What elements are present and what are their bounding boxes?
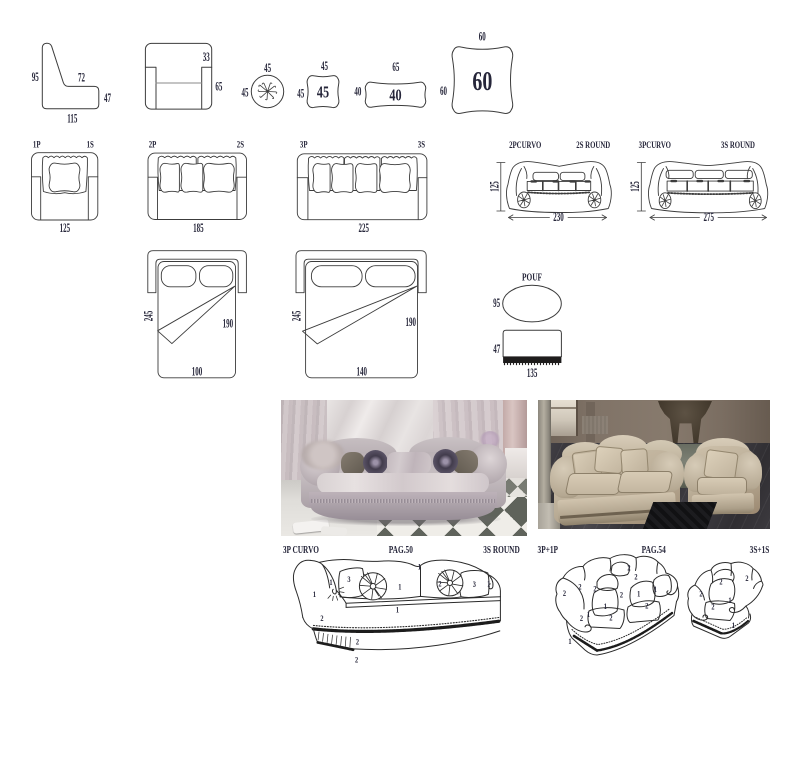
svg-text:3S+1S: 3S+1S [750,544,770,556]
svg-text:140: 140 [356,366,366,380]
svg-text:PAG.50: PAG.50 [389,544,413,556]
svg-text:2: 2 [711,602,714,612]
svg-text:275: 275 [704,211,714,225]
svg-text:2: 2 [627,563,630,573]
svg-text:115: 115 [67,112,77,126]
svg-text:3P: 3P [300,139,308,149]
svg-text:2: 2 [620,590,623,600]
svg-text:2: 2 [563,588,566,598]
svg-text:65: 65 [392,61,399,75]
svg-text:47: 47 [493,343,500,357]
svg-text:2P: 2P [149,139,157,149]
svg-text:72: 72 [78,72,85,86]
svg-text:45: 45 [297,88,304,102]
svg-text:1: 1 [487,579,490,589]
svg-text:60: 60 [440,85,447,99]
svg-text:2: 2 [609,613,612,623]
svg-text:100: 100 [192,366,202,380]
svg-text:1: 1 [654,584,657,594]
svg-text:2PCURVO: 2PCURVO [509,140,542,150]
svg-text:2: 2 [580,613,583,623]
svg-text:1P: 1P [33,139,41,149]
svg-text:1: 1 [398,582,401,592]
svg-text:45: 45 [321,60,328,74]
svg-text:60: 60 [479,31,486,45]
svg-text:125: 125 [60,222,70,236]
svg-text:2: 2 [578,582,581,592]
svg-text:2: 2 [355,655,358,665]
svg-text:2: 2 [719,577,722,587]
svg-text:3S: 3S [418,139,426,149]
svg-text:190: 190 [223,318,233,332]
svg-text:95: 95 [493,297,500,311]
svg-text:2: 2 [320,613,323,623]
svg-text:45: 45 [317,84,329,102]
svg-text:125: 125 [629,181,643,191]
svg-text:33: 33 [203,51,210,65]
svg-text:47: 47 [104,92,111,106]
svg-text:1: 1 [637,589,640,599]
svg-text:125: 125 [488,181,502,191]
svg-text:3S ROUND: 3S ROUND [483,544,520,556]
svg-text:2: 2 [438,579,441,589]
svg-text:225: 225 [359,222,369,236]
svg-text:65: 65 [215,80,222,94]
svg-text:3P CURVO: 3P CURVO [283,544,319,556]
svg-text:1: 1 [313,589,316,599]
svg-text:40: 40 [389,87,401,105]
svg-text:185: 185 [193,222,203,236]
svg-text:1S: 1S [87,139,95,149]
svg-text:3PCURVO: 3PCURVO [639,140,672,150]
svg-text:245: 245 [143,311,157,321]
svg-text:1: 1 [418,562,421,572]
svg-text:3: 3 [347,574,350,584]
svg-text:2S ROUND: 2S ROUND [576,140,610,150]
svg-text:135: 135 [527,367,537,381]
svg-text:1: 1 [732,620,735,630]
svg-text:POUF: POUF [522,271,542,283]
svg-text:PAG.54: PAG.54 [642,544,666,556]
svg-text:2S: 2S [237,139,245,149]
svg-text:1: 1 [396,605,399,615]
svg-text:2: 2 [699,589,702,599]
svg-text:60: 60 [472,67,492,97]
svg-text:2: 2 [645,601,648,611]
svg-text:2: 2 [593,584,596,594]
svg-text:190: 190 [406,316,416,330]
svg-text:45: 45 [242,86,249,100]
svg-text:1: 1 [728,595,731,605]
svg-text:2: 2 [634,572,637,582]
svg-text:3: 3 [473,579,476,589]
svg-text:230: 230 [553,211,563,225]
svg-text:1: 1 [329,577,332,587]
svg-text:245: 245 [291,311,305,321]
svg-text:95: 95 [32,71,39,85]
svg-text:1: 1 [587,609,590,619]
svg-text:2: 2 [745,573,748,583]
svg-text:45: 45 [264,62,271,76]
svg-text:1: 1 [568,636,571,646]
svg-text:3P+1P: 3P+1P [538,544,559,556]
svg-text:3S ROUND: 3S ROUND [721,140,755,150]
svg-text:2: 2 [356,637,359,647]
svg-text:1: 1 [604,601,607,611]
svg-text:40: 40 [354,86,361,100]
